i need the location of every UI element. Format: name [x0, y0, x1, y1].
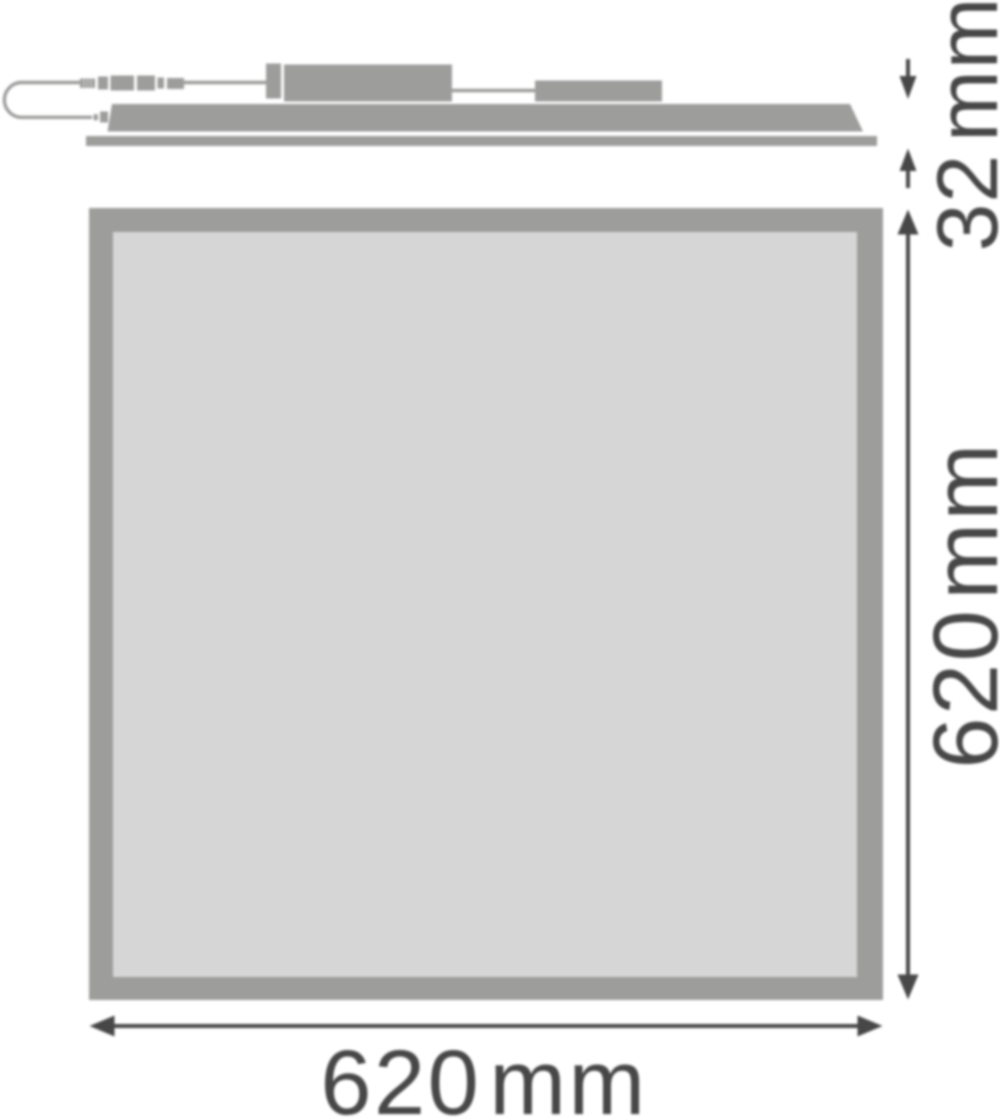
svg-text:620 mm: 620 mm — [915, 441, 1000, 768]
svg-text:620 mm: 620 mm — [320, 1032, 647, 1118]
svg-text:32 mm: 32 mm — [920, 0, 1000, 251]
